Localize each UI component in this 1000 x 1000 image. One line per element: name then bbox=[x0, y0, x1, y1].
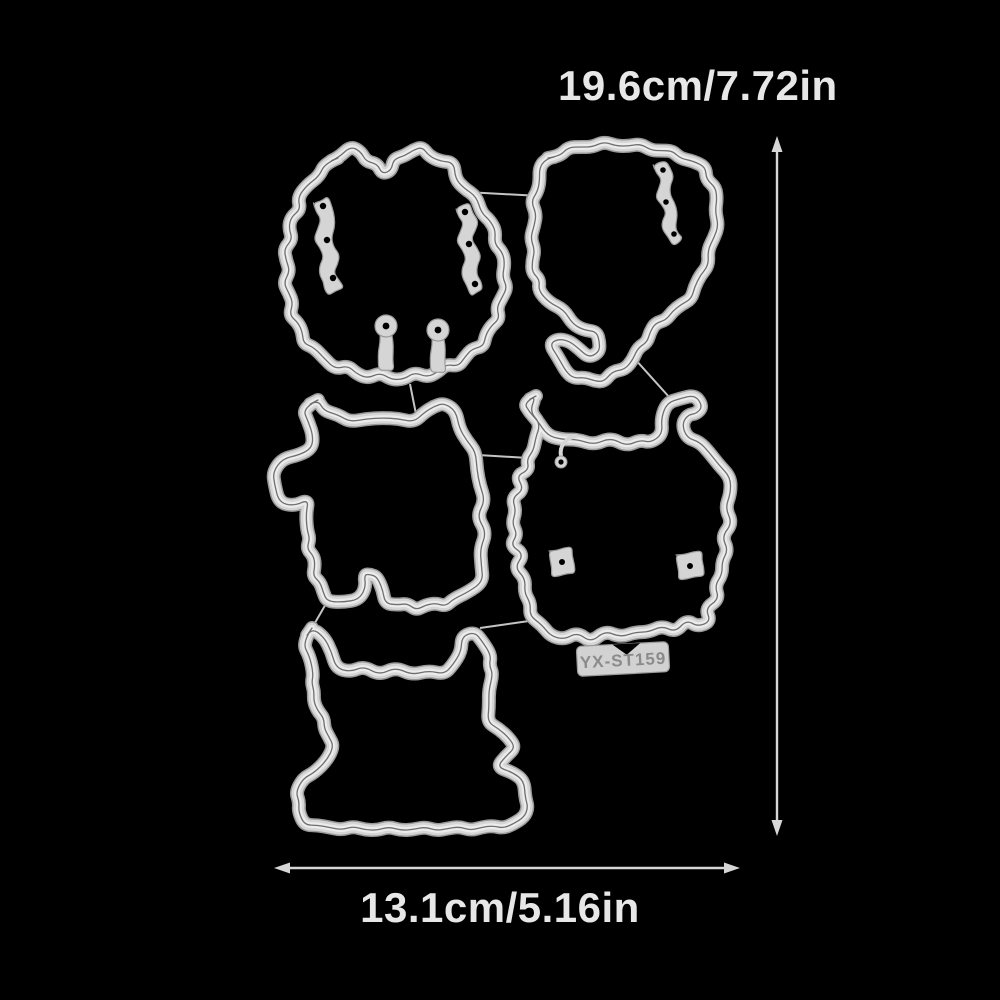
width-dimension-label: 13.1cm/5.16in bbox=[0, 884, 1000, 932]
product-photo-canvas: YX-ST159 bbox=[0, 0, 1000, 1000]
die-furry-monster-top-left bbox=[285, 148, 506, 379]
connecting-wires bbox=[312, 192, 670, 628]
product-code-tag: YX-ST159 bbox=[576, 642, 669, 677]
die-monster-on-base-bottom bbox=[297, 628, 527, 830]
height-dimension-label: 19.6cm/7.72in bbox=[558, 62, 838, 110]
die-wide-arm-monster-middle-right bbox=[513, 396, 731, 640]
height-dimension-arrow bbox=[772, 136, 783, 836]
die-monster-with-tail-top-right bbox=[531, 143, 717, 381]
width-dimension-arrow bbox=[274, 863, 740, 874]
die-horned-monster-middle-left bbox=[274, 400, 485, 609]
